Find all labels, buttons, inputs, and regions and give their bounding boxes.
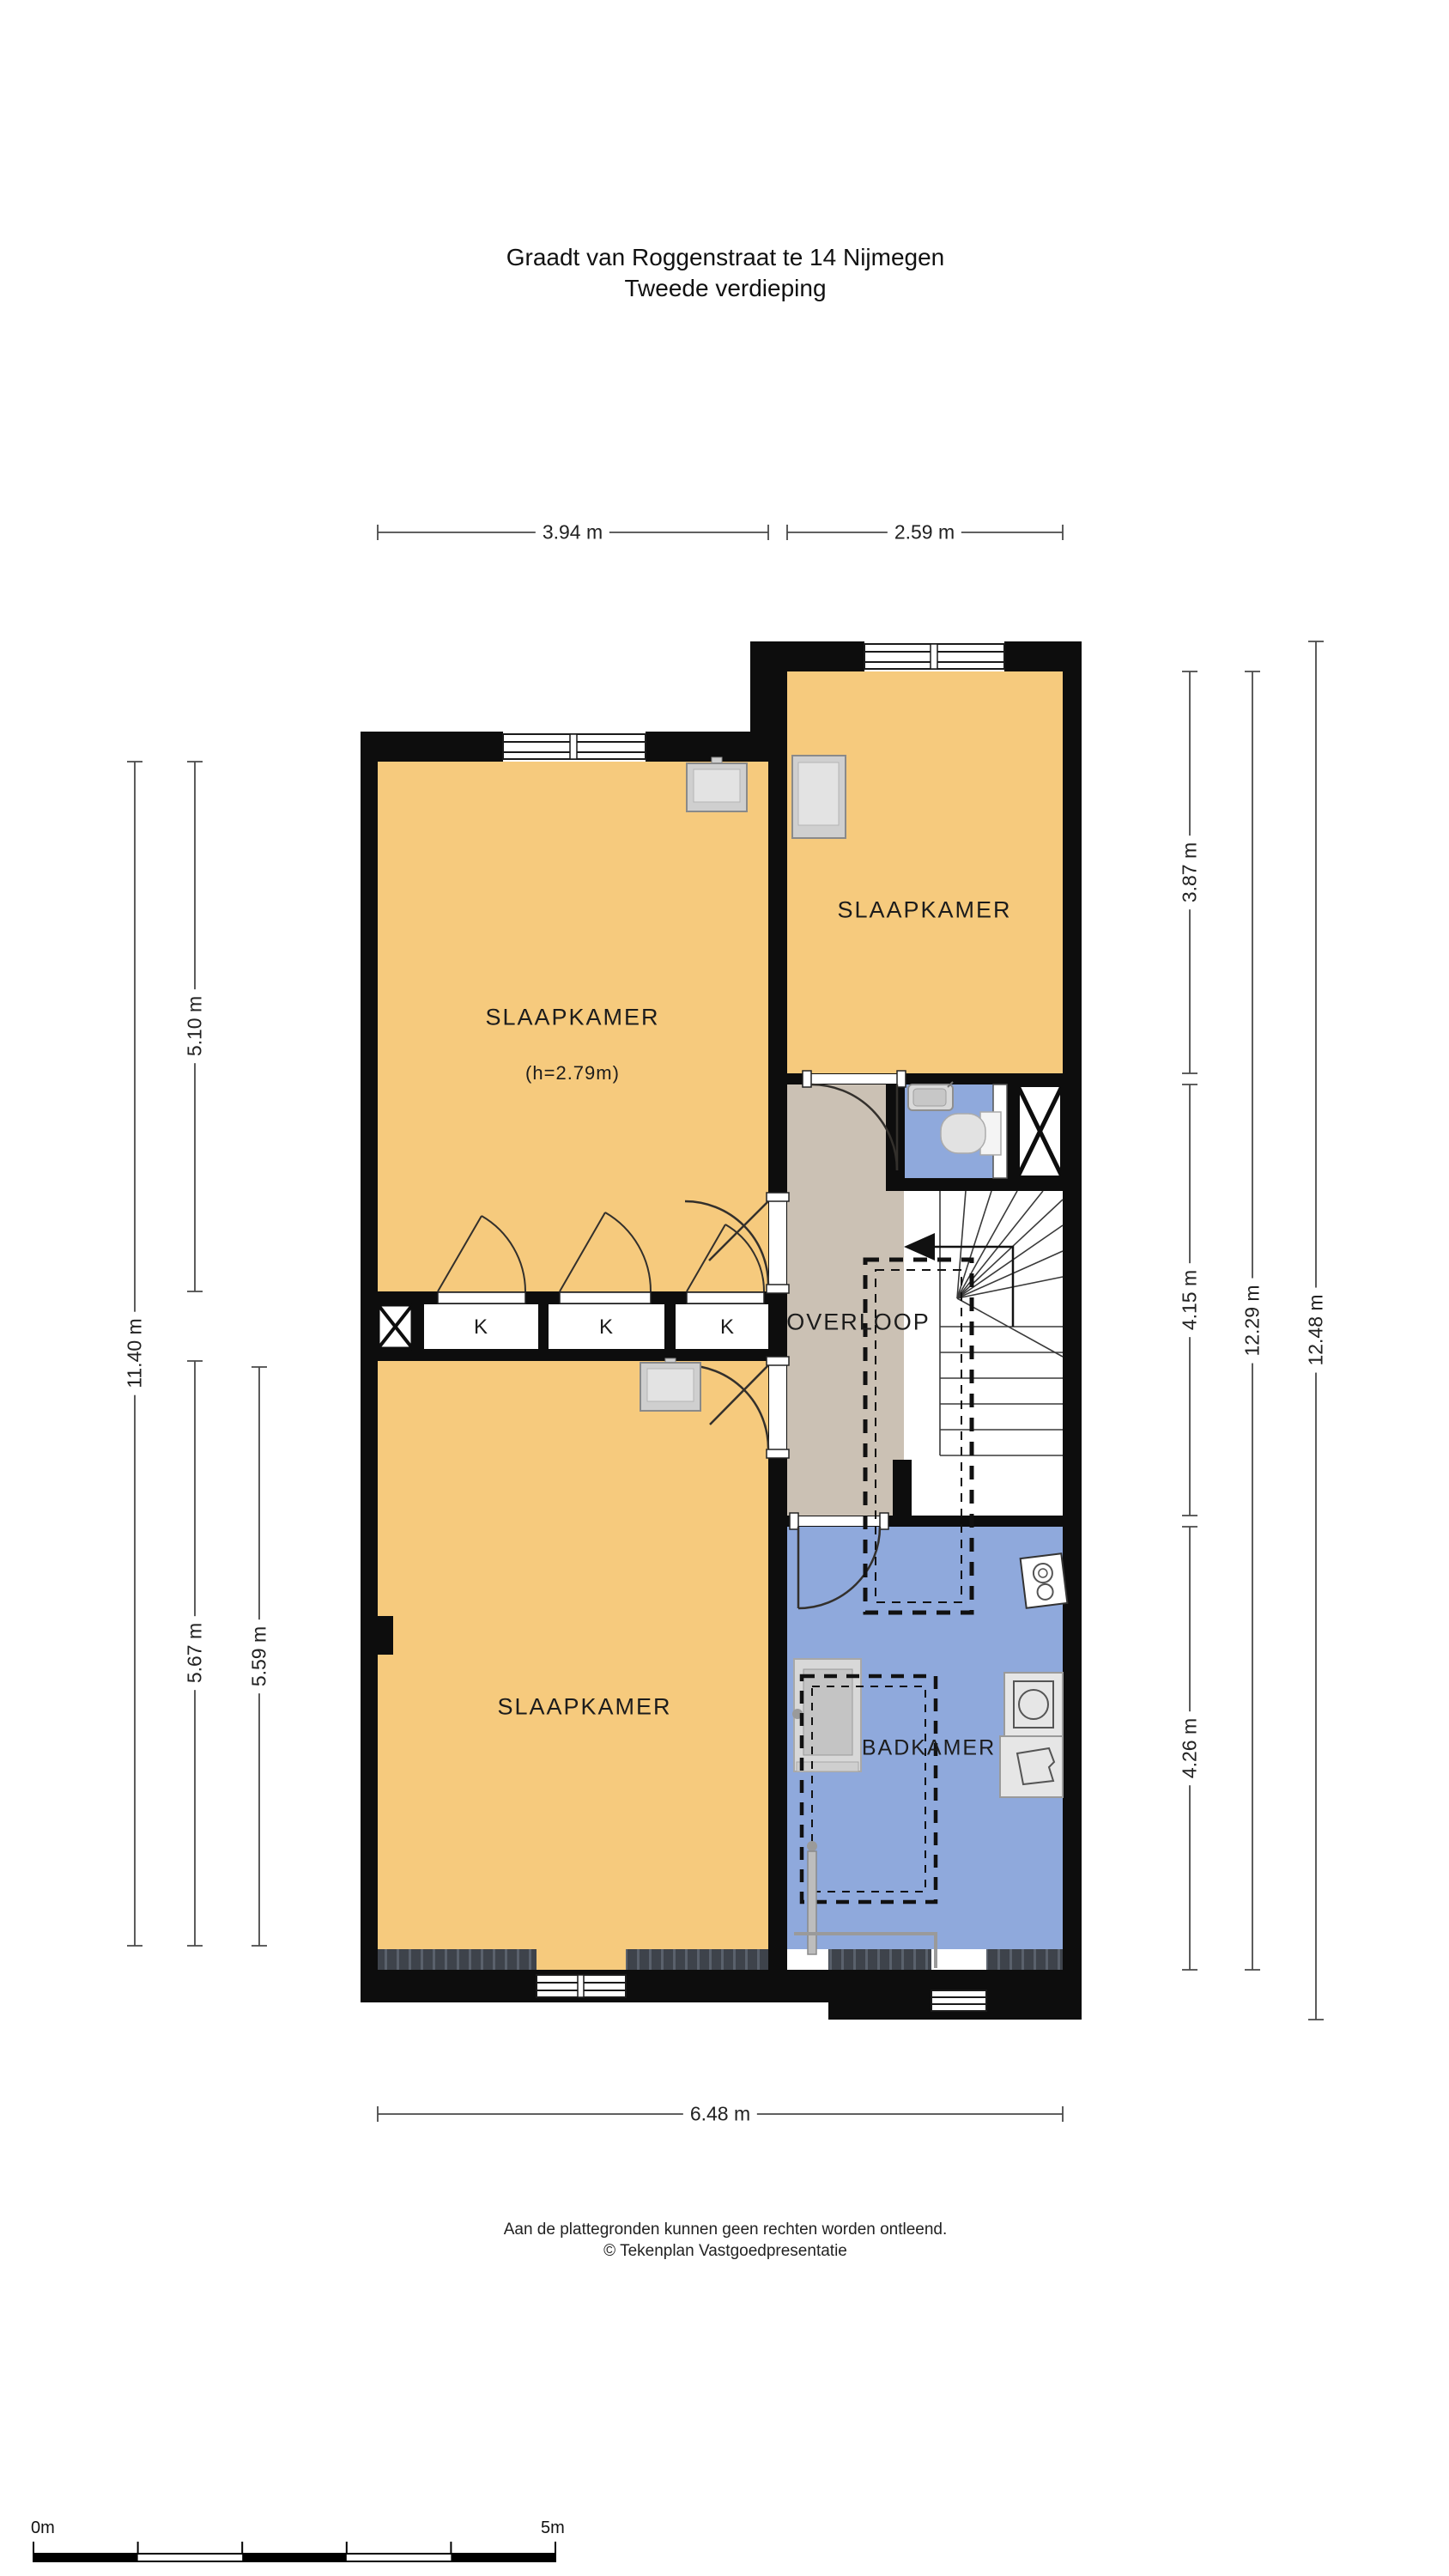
page-title: Graadt van Roggenstraat te 14 Nijmegen (506, 244, 945, 271)
shaft-toilet-icon (1017, 1084, 1063, 1178)
floor-bedroom-top-right (787, 671, 1063, 1073)
floorplan-page: Graadt van Roggenstraat te 14 Nijmegen T… (0, 0, 1449, 2576)
footer-disclaimer: Aan de plattegronden kunnen geen rechten… (504, 2221, 948, 2239)
scale-start-label: 0m (31, 2518, 55, 2538)
window-top-left (503, 734, 646, 759)
toilet-sink-icon (908, 1082, 953, 1110)
dim-right-outer-total: 12.48 m (1305, 1287, 1326, 1372)
bathroom-sink-icon (1000, 1736, 1063, 1797)
closet-label: K (720, 1315, 734, 1340)
scale-end-label: 5m (541, 2518, 565, 2538)
window-bottom-bedroom (537, 1975, 626, 1997)
roof-edge-strips (378, 1949, 1063, 1971)
floor-bedroom-bottom (378, 1361, 768, 1970)
dim-left-lower-inner: 5.59 m (248, 1619, 270, 1693)
towel-radiator-icon (807, 1841, 817, 1954)
window-top-right (864, 644, 1004, 669)
shaft-left-icon (378, 1304, 413, 1349)
dim-right-lower: 4.26 m (1179, 1711, 1200, 1785)
dim-top-right: 2.59 m (888, 521, 961, 543)
dim-left-upper: 5.10 m (184, 989, 205, 1063)
room-label-bathroom: BADKAMER (862, 1736, 996, 1761)
dim-right-inner-total: 12.29 m (1241, 1278, 1263, 1363)
dim-left-total: 11.40 m (124, 1311, 145, 1394)
closet-label: K (599, 1315, 613, 1340)
room-height-note: (h=2.79m) (525, 1062, 620, 1084)
room-label-bedroom-top-right: SLAAPKAMER (837, 897, 1011, 924)
closet-label: K (474, 1315, 488, 1340)
footer-copyright: © Tekenplan Vastgoedpresentatie (603, 2242, 847, 2261)
page-subtitle: Tweede verdieping (624, 275, 826, 302)
dim-right-upper: 3.87 m (1179, 835, 1200, 909)
boiler-icon (1021, 1553, 1068, 1607)
toilet-wc-icon (941, 1112, 1001, 1155)
window-bottom-bathroom (931, 1990, 986, 2011)
floorplan-drawing (0, 0, 1449, 2576)
room-label-bedroom-top-left: SLAAPKAMER (485, 1005, 659, 1031)
scale-bar (33, 2542, 555, 2561)
room-label-bedroom-bottom: SLAAPKAMER (497, 1694, 671, 1721)
radiator-icon (792, 756, 846, 838)
dim-right-middle: 4.15 m (1179, 1263, 1200, 1337)
radiator-icon (640, 1358, 700, 1411)
room-label-landing: OVERLOOP (786, 1309, 931, 1336)
radiator-icon (687, 757, 747, 811)
dim-top-left: 3.94 m (536, 521, 609, 543)
dim-left-lower-outer: 5.67 m (184, 1616, 205, 1690)
dim-bottom: 6.48 m (683, 2103, 757, 2124)
washing-machine-icon (1004, 1673, 1063, 1736)
